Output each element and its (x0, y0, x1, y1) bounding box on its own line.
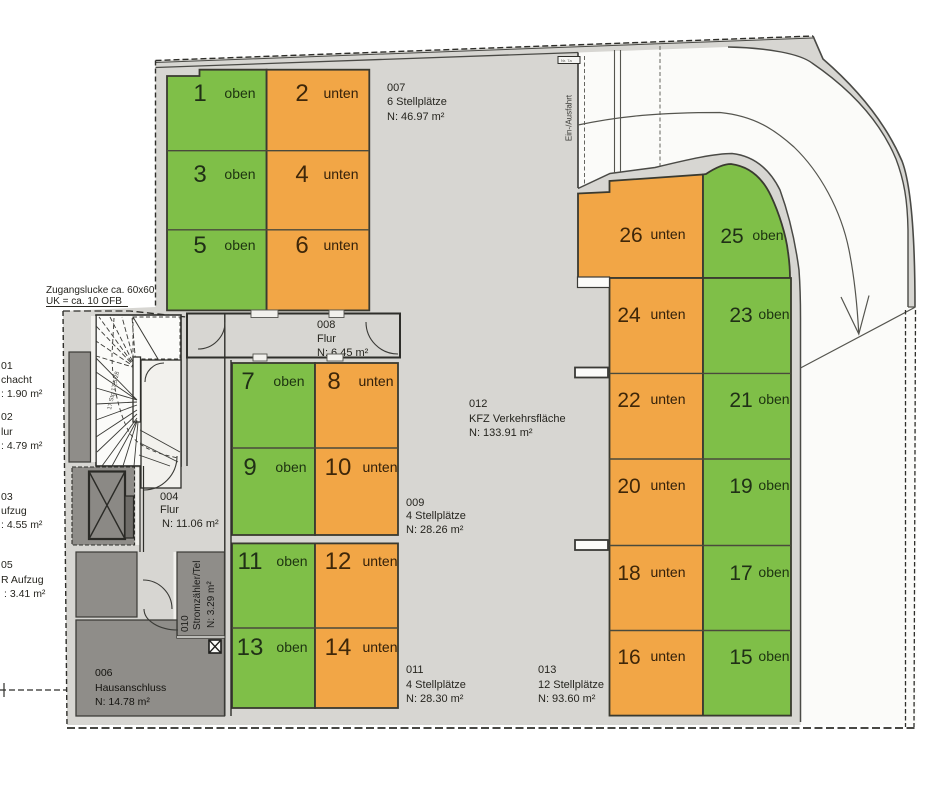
svg-text:KFZ Verkehrsfläche: KFZ Verkehrsfläche (469, 413, 566, 425)
svg-text:Flur: Flur (160, 504, 179, 516)
svg-text:013: 013 (538, 664, 556, 676)
svg-text:: 4.79 m²: : 4.79 m² (1, 440, 43, 452)
svg-text:Zugangslucke ca. 60x60: Zugangslucke ca. 60x60 (46, 285, 155, 296)
svg-text:unten: unten (650, 648, 685, 664)
svg-text:ufzug: ufzug (1, 505, 27, 517)
svg-text:12: 12 (325, 548, 352, 575)
svg-text:unten: unten (362, 459, 397, 475)
svg-text:12 Stellplätze: 12 Stellplätze (538, 679, 604, 691)
svg-text:4: 4 (295, 161, 308, 188)
svg-text:03: 03 (1, 491, 13, 503)
svg-text:13: 13 (237, 634, 264, 661)
svg-text:21: 21 (729, 389, 752, 412)
svg-text:26: 26 (619, 224, 642, 247)
svg-text:16: 16 (617, 646, 640, 669)
svg-text:N: 133.91 m²: N: 133.91 m² (469, 427, 533, 439)
svg-text:6: 6 (295, 232, 308, 259)
svg-text:01: 01 (1, 360, 13, 372)
svg-text:17: 17 (729, 562, 752, 585)
svg-text:oben: oben (758, 477, 789, 493)
svg-text:11: 11 (238, 548, 263, 575)
svg-text:unten: unten (323, 166, 358, 182)
svg-text:unten: unten (358, 373, 393, 389)
svg-text:8: 8 (327, 368, 340, 395)
svg-text:18: 18 (617, 562, 640, 585)
svg-text:3: 3 (193, 161, 206, 188)
svg-text:4 Stellplätze: 4 Stellplätze (406, 510, 466, 522)
svg-text:oben: oben (758, 564, 789, 580)
svg-text:6 Stellplätze: 6 Stellplätze (387, 96, 447, 108)
svg-text:24: 24 (617, 304, 641, 327)
svg-text:004: 004 (160, 491, 178, 503)
svg-text:Flur: Flur (317, 333, 336, 345)
svg-text:unten: unten (362, 639, 397, 655)
svg-text:5: 5 (193, 232, 206, 259)
svg-text:lur: lur (1, 426, 13, 438)
svg-text:Ein-/Ausfahrt: Ein-/Ausfahrt (565, 94, 574, 141)
svg-text:010: 010 (180, 615, 191, 632)
svg-text:1: 1 (193, 80, 206, 107)
svg-text:oben: oben (758, 391, 789, 407)
svg-text:oben: oben (276, 639, 307, 655)
svg-text:22: 22 (617, 389, 640, 412)
svg-text:012: 012 (469, 398, 487, 410)
svg-text:N: 28.30 m²: N: 28.30 m² (406, 693, 464, 705)
svg-text:unten: unten (323, 237, 358, 253)
svg-text:unten: unten (362, 553, 397, 569)
svg-text:unten: unten (650, 564, 685, 580)
svg-text:23: 23 (729, 304, 752, 327)
svg-text:unten: unten (650, 391, 685, 407)
svg-text:unten: unten (650, 477, 685, 493)
svg-text:oben: oben (275, 459, 306, 475)
svg-text:008: 008 (317, 319, 335, 331)
svg-text:oben: oben (224, 85, 255, 101)
svg-text:19: 19 (729, 475, 752, 498)
svg-text:25: 25 (720, 225, 743, 248)
svg-text:N: 3.29 m²: N: 3.29 m² (206, 581, 217, 628)
svg-text:006: 006 (95, 667, 113, 679)
svg-text:9: 9 (243, 454, 256, 481)
svg-text:2: 2 (295, 80, 308, 107)
svg-text:oben: oben (273, 373, 304, 389)
svg-text:: 4.55 m²: : 4.55 m² (1, 519, 43, 531)
svg-text:007: 007 (387, 82, 405, 94)
svg-text:R Aufzug: R Aufzug (1, 574, 44, 586)
svg-text:05: 05 (1, 559, 13, 571)
svg-text:oben: oben (224, 166, 255, 182)
svg-text:: 1.90 m²: : 1.90 m² (1, 388, 43, 400)
svg-text:02: 02 (1, 411, 13, 423)
svg-text:N: 14.78 m²: N: 14.78 m² (95, 696, 150, 708)
svg-text:Nr. 7a: Nr. 7a (561, 58, 572, 63)
svg-text:10: 10 (325, 454, 352, 481)
svg-text:14: 14 (325, 634, 352, 661)
svg-text:4 Stellplätze: 4 Stellplätze (406, 679, 466, 691)
svg-text:unten: unten (650, 306, 685, 322)
svg-text:N: 11.06 m²: N: 11.06 m² (162, 518, 219, 530)
svg-text:oben: oben (752, 227, 783, 243)
svg-text:unten: unten (323, 85, 358, 101)
svg-text:oben: oben (758, 648, 789, 664)
svg-text:unten: unten (650, 226, 685, 242)
svg-text:N: 93.60 m²: N: 93.60 m² (538, 693, 596, 705)
svg-text:Hausanschluss: Hausanschluss (95, 682, 166, 694)
svg-text:chacht: chacht (1, 374, 32, 386)
svg-text:20: 20 (617, 475, 640, 498)
svg-text:7: 7 (241, 368, 254, 395)
svg-text:UK = ca. 10 OFB: UK = ca. 10 OFB (46, 296, 122, 307)
svg-text:oben: oben (758, 306, 789, 322)
svg-text:009: 009 (406, 497, 424, 509)
svg-text:N: 46.97 m²: N: 46.97 m² (387, 111, 445, 123)
svg-text:N: 28.26 m²: N: 28.26 m² (406, 524, 464, 536)
svg-text:oben: oben (276, 553, 307, 569)
svg-text:Stromzähler/Tel: Stromzähler/Tel (192, 561, 203, 630)
svg-text:: 3.41 m²: : 3.41 m² (4, 588, 46, 600)
svg-text:15: 15 (729, 646, 752, 669)
svg-text:011: 011 (406, 664, 424, 676)
svg-text:oben: oben (224, 237, 255, 253)
